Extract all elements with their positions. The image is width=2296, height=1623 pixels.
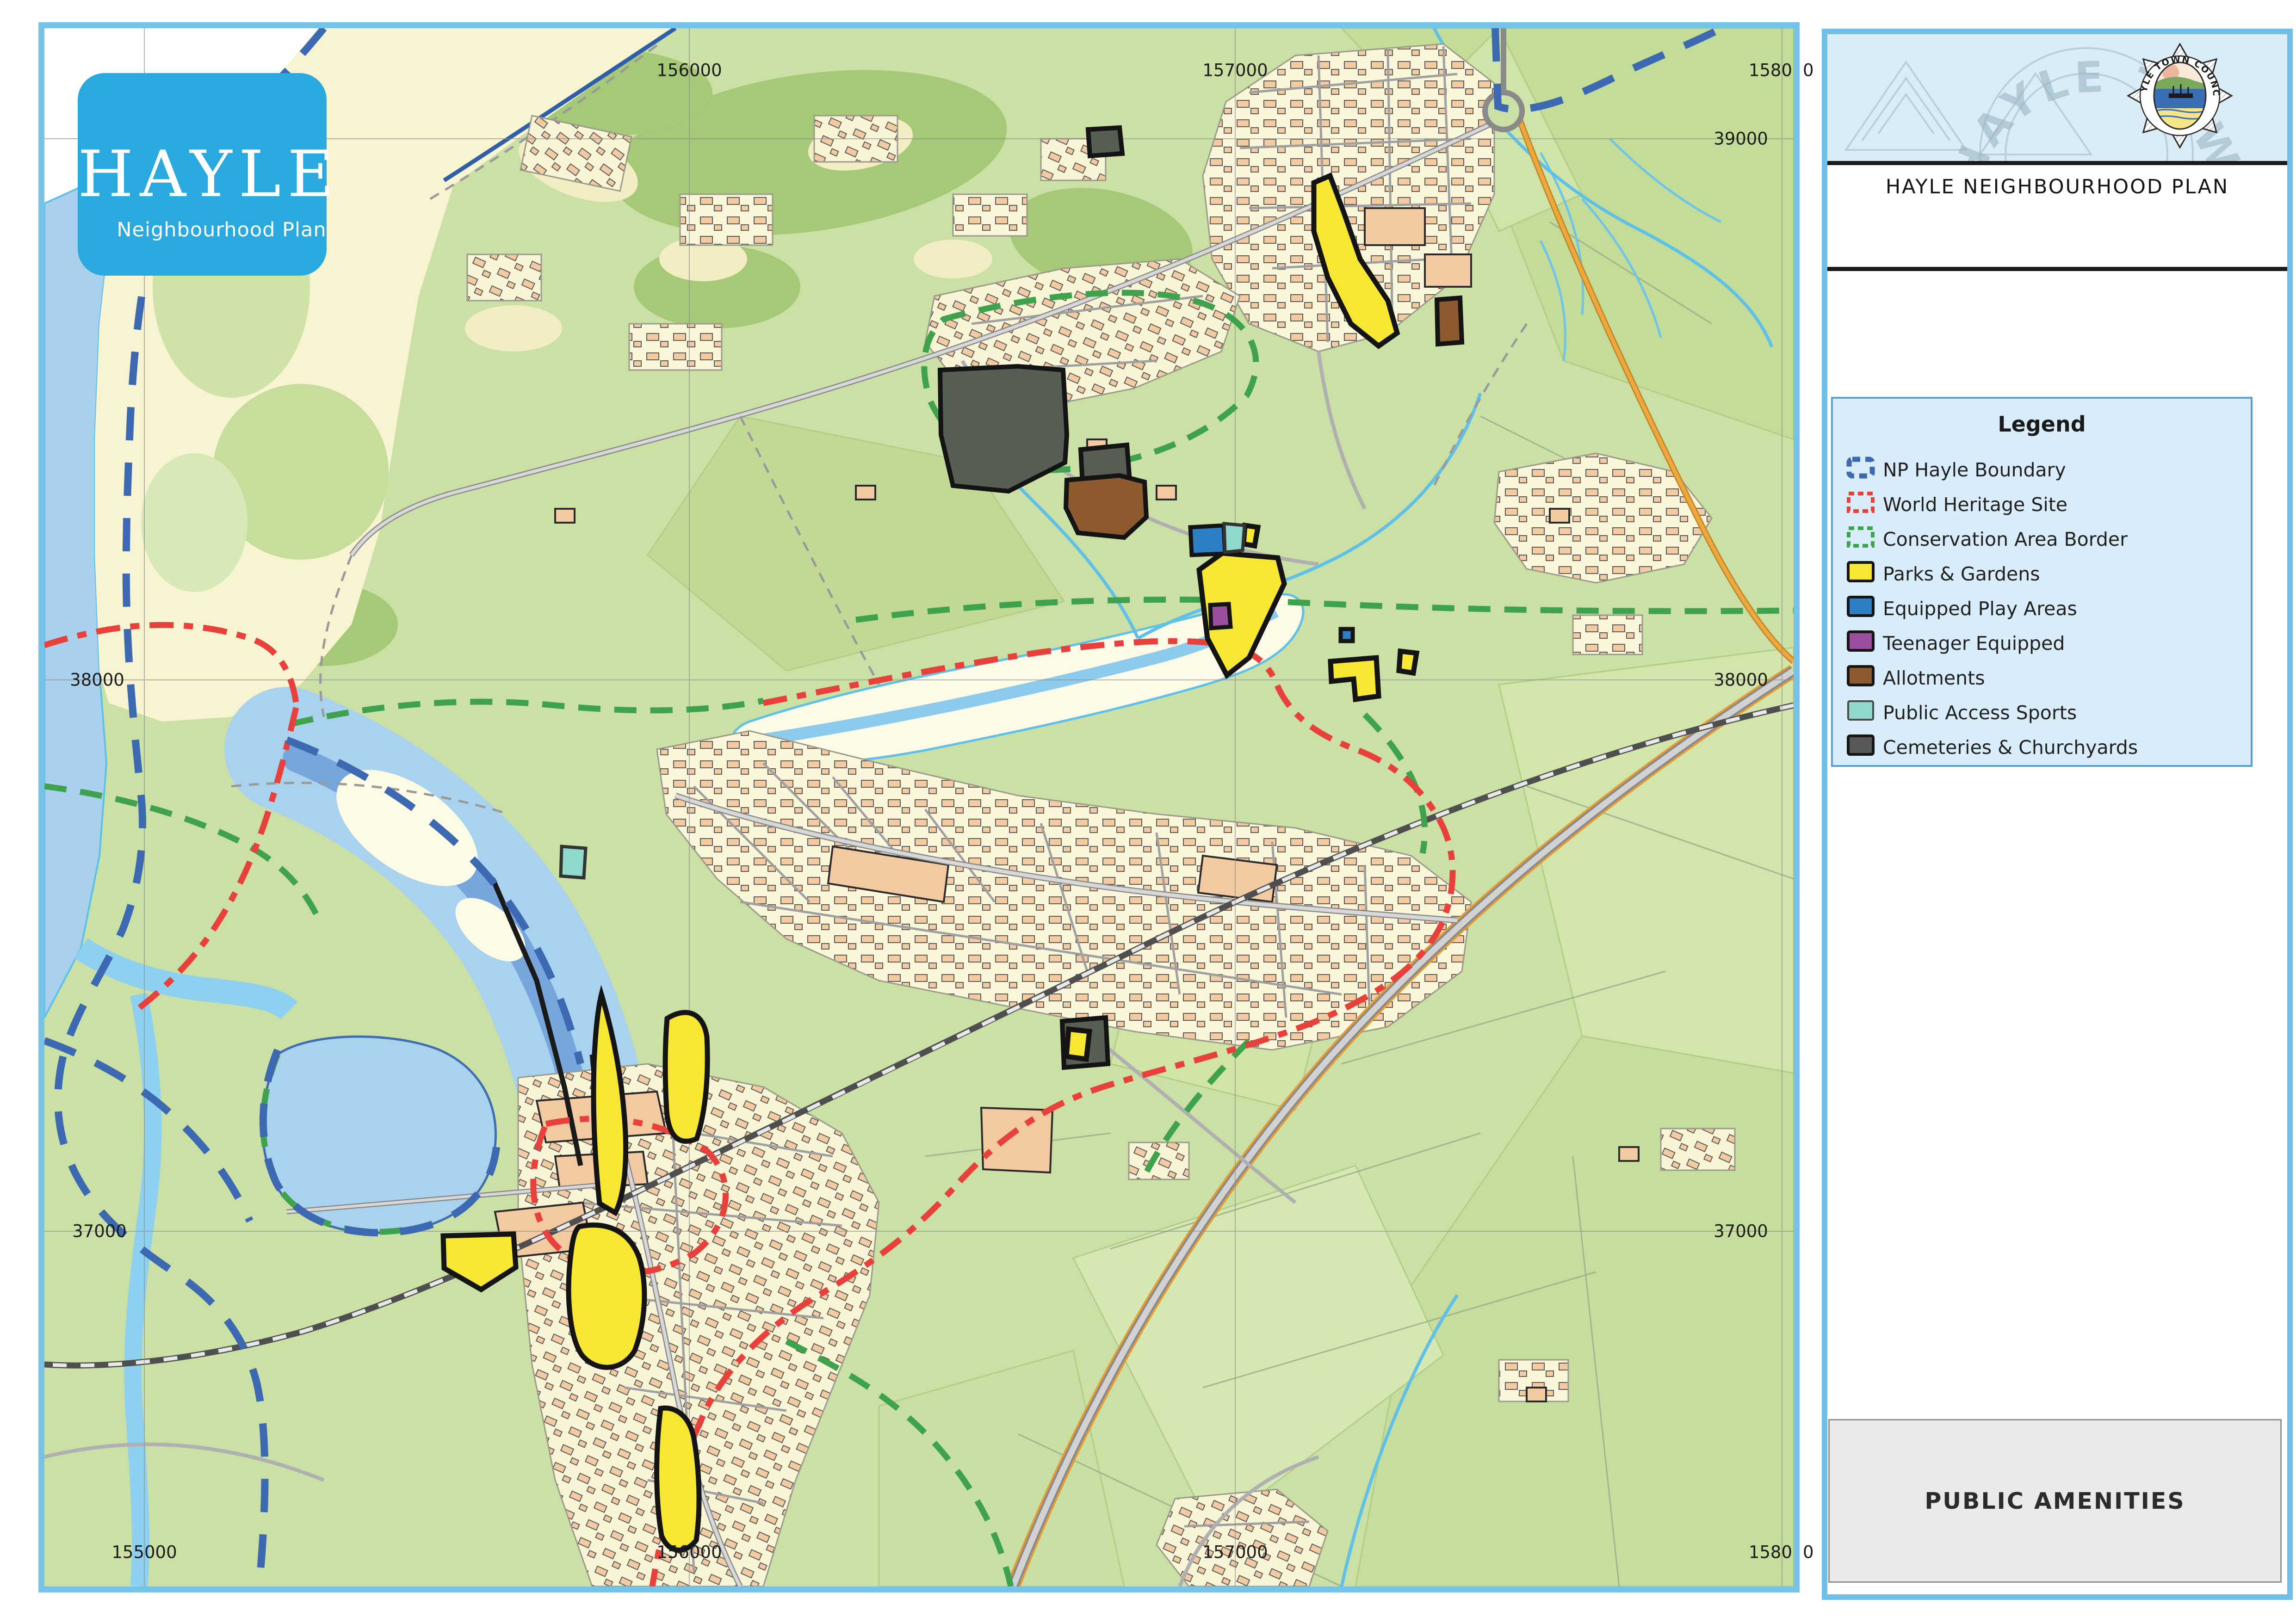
legend-item-np-boundary: NP Hayle Boundary [1833, 452, 2251, 487]
grid-label-bottom-155000: 155000 [111, 1543, 177, 1562]
legend-label: NP Hayle Boundary [1883, 459, 2066, 481]
sports-swatch-icon [1846, 699, 1875, 722]
sheet-title: PUBLIC AMENITIES [1925, 1488, 2185, 1514]
grid-label-right-38000: 38000 [1714, 670, 1768, 690]
legend-item-conservation-area: Conservation Area Border [1833, 522, 2251, 556]
grid-label-top-158000-overflow: 0 [1803, 61, 1814, 80]
grid-label-left-37000: 37000 [72, 1222, 127, 1241]
grid-label-top-158000-clipped: 1580 [1749, 61, 1792, 80]
conservation-swatch-icon [1846, 525, 1875, 549]
legend-label: Parks & Gardens [1883, 563, 2040, 585]
teenager-equipped [1210, 604, 1231, 628]
logo-subtitle: Neighbourhood Plan [97, 218, 346, 241]
allotments-swatch-icon [1846, 664, 1875, 687]
legend-label: Allotments [1883, 667, 1985, 689]
legend-items: NP Hayle Boundary World Heritage Site Co… [1833, 452, 2251, 765]
legend-label: Conservation Area Border [1883, 528, 2128, 550]
legend-item-world-heritage: World Heritage Site [1833, 487, 2251, 522]
divider-rule-bottom [1827, 267, 2287, 271]
grid-label-bottom-158000-overflow: 0 [1803, 1543, 1814, 1562]
equipped-play-swatch-icon [1846, 595, 1875, 618]
whs-swatch-icon [1846, 491, 1875, 514]
legend-item-parks-gardens: Parks & Gardens [1833, 556, 2251, 591]
legend-label: World Heritage Site [1883, 494, 2067, 516]
divider-rule-top [1827, 161, 2287, 165]
legend: Legend NP Hayle Boundary World Heritage … [1831, 397, 2253, 767]
plan-title: HAYLE NEIGHBOURHOOD PLAN [1827, 171, 2287, 203]
legend-item-teenager-equipped: Teenager Equipped [1833, 626, 2251, 660]
grid-label-left-38000: 38000 [70, 670, 124, 690]
legend-title: Legend [1833, 412, 2251, 437]
cemeteries-swatch-icon [1846, 734, 1875, 757]
grid-label-right-37000: 37000 [1714, 1222, 1768, 1241]
parks-swatch-icon [1846, 560, 1875, 583]
legend-label: Public Access Sports [1883, 702, 2077, 724]
logo-title: HAYLE [78, 142, 327, 206]
legend-item-public-access-sports: Public Access Sports [1833, 695, 2251, 730]
grid-label-top-157000: 157000 [1202, 61, 1268, 80]
grid-label-bottom-157000: 157000 [1202, 1543, 1268, 1562]
sidebar-panel: HAYLE TOWN COUNCIL [1822, 29, 2293, 1600]
legend-item-allotments: Allotments [1833, 660, 2251, 695]
grid-label-right-39000: 39000 [1714, 129, 1768, 149]
map-sheet-title-box: PUBLIC AMENITIES [1828, 1419, 2282, 1583]
grid-label-bottom-156000: 156000 [656, 1543, 722, 1562]
teenager-swatch-icon [1846, 629, 1875, 653]
np-boundary-swatch-icon [1846, 456, 1875, 479]
grid-label-bottom-158000-clipped: 1580 [1749, 1543, 1792, 1562]
legend-item-equipped-play: Equipped Play Areas [1833, 591, 2251, 626]
crest-header: HAYLE TOWN COUNCIL [1827, 34, 2287, 161]
legend-label: Teenager Equipped [1883, 632, 2065, 654]
legend-label: Equipped Play Areas [1883, 598, 2077, 620]
grid-label-top-156000: 156000 [656, 61, 722, 80]
page-root: 156000 157000 1580 155000 156000 157000 … [0, 0, 2296, 1623]
town-council-crest: HAYLE TOWN COUNCIL [2124, 38, 2235, 154]
hayle-np-logo: HAYLE Neighbourhood Plan [78, 73, 327, 276]
legend-item-cemeteries: Cemeteries & Churchyards [1833, 730, 2251, 765]
legend-label: Cemeteries & Churchyards [1883, 736, 2138, 759]
